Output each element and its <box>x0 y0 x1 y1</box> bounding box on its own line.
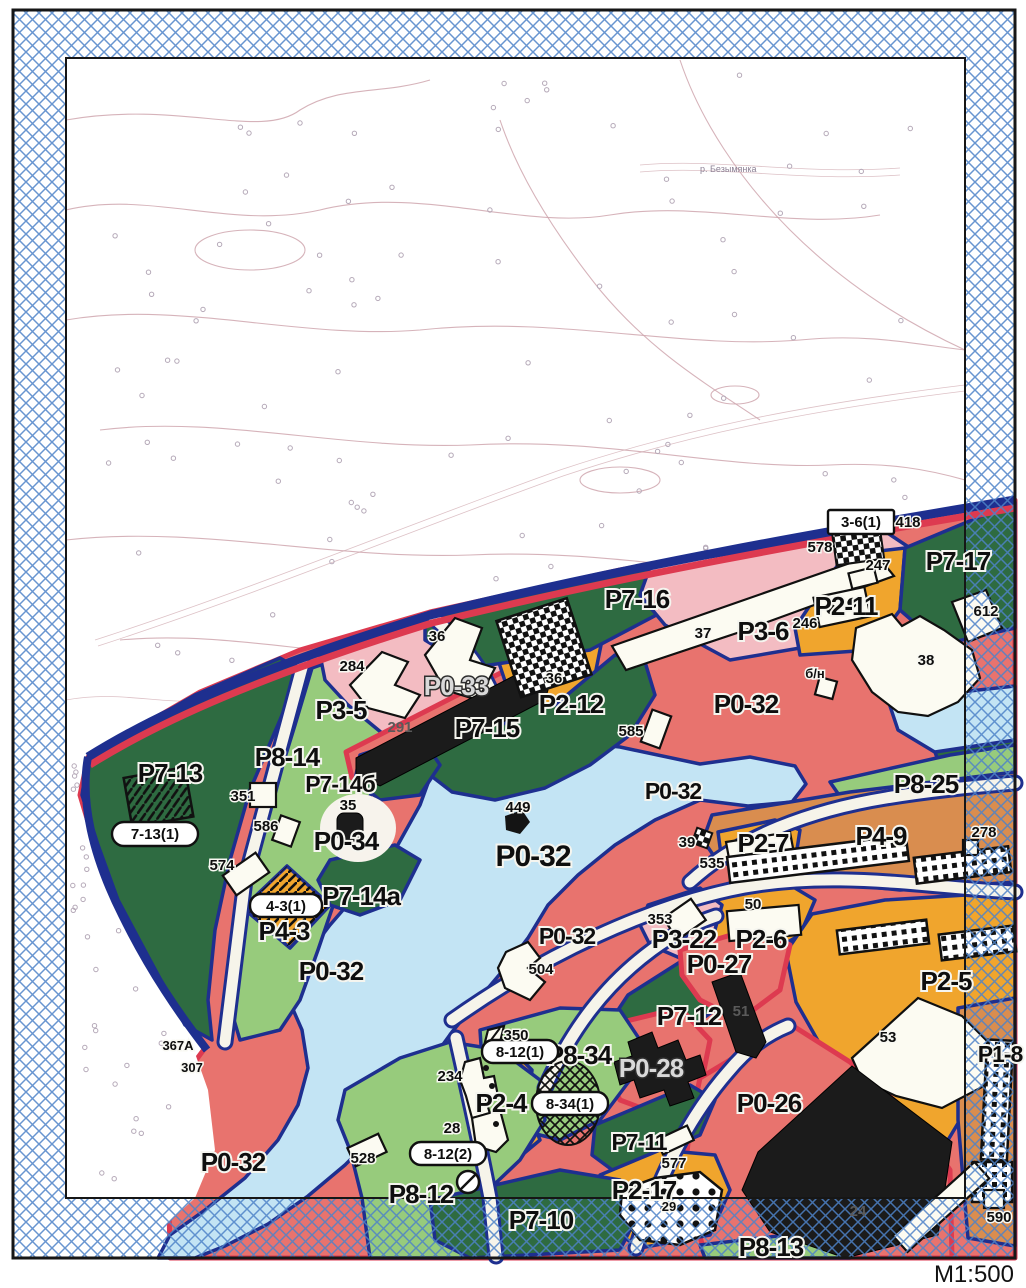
num-574: 574 <box>209 857 235 874</box>
zone-label-p2-7: Р2-7 <box>738 828 789 858</box>
num-247: 247 <box>865 557 890 574</box>
zone-label-p0-26: Р0-26 <box>737 1088 802 1118</box>
badge-8-34-1: 8-34(1) <box>532 1092 608 1115</box>
badge-4-3-1: 4-3(1) <box>250 894 322 917</box>
num-367a: 367А <box>162 1038 194 1053</box>
zone-label-p7-10: Р7-10 <box>509 1205 574 1235</box>
zone-label-p7-17: Р7-17 <box>926 546 991 576</box>
zone-label-p7-14b: Р7-14б <box>305 771 375 797</box>
zone-label-p0-32-c: Р0-32 <box>645 778 702 804</box>
num-351: 351 <box>230 788 255 805</box>
num-585: 585 <box>618 723 643 740</box>
zone-label-p1-8: Р1-8 <box>978 1041 1024 1067</box>
num-350: 350 <box>503 1027 528 1044</box>
zone-label-p0-27: Р0-27 <box>687 949 752 979</box>
zone-label-p2-5: Р2-5 <box>921 966 972 996</box>
zone-label-p8-13: Р8-13 <box>739 1232 804 1262</box>
svg-text:8-34(1): 8-34(1) <box>546 1096 594 1113</box>
zone-label-p3-5: Р3-5 <box>316 695 367 725</box>
svg-text:7-13(1): 7-13(1) <box>131 826 179 843</box>
zone-label-p7-12: Р7-12 <box>657 1001 722 1031</box>
num-590: 590 <box>986 1209 1011 1226</box>
num-449: 449 <box>505 799 530 816</box>
num-586: 586 <box>253 818 278 835</box>
zone-label-p0-32-e: Р0-32 <box>299 956 364 986</box>
zone-label-p0-28: Р0-28 <box>619 1053 684 1083</box>
num-504: 504 <box>528 961 554 978</box>
zone-label-p0-32-f: Р0-32 <box>201 1147 266 1177</box>
num-36b: 36 <box>546 670 563 687</box>
num-307: 307 <box>181 1060 203 1075</box>
badge-8-12-2: 8-12(2) <box>410 1142 486 1165</box>
num-bn: б/н <box>805 666 825 681</box>
zone-label-p4-3: Р4-3 <box>259 916 310 946</box>
river-label: р. Безымянка <box>700 164 757 174</box>
num-535: 535 <box>699 855 724 872</box>
zone-label-p0-32-lake: Р0-32 <box>495 840 570 873</box>
num-53: 53 <box>880 1029 897 1046</box>
zoning-map-page: р. Безымянка <box>0 0 1026 1288</box>
num-353: 353 <box>647 911 672 928</box>
zone-label-p7-11: Р7-11 <box>611 1129 667 1155</box>
num-291: 291 <box>387 719 412 736</box>
num-246: 246 <box>792 615 817 632</box>
num-50: 50 <box>745 896 762 913</box>
num-578: 578 <box>807 539 832 556</box>
num-35: 35 <box>340 797 357 814</box>
num-528: 528 <box>350 1150 375 1167</box>
badge-7-13-1: 7-13(1) <box>112 822 198 846</box>
num-278: 278 <box>971 824 996 841</box>
zoning-map: р. Безымянка <box>0 0 1026 1288</box>
svg-text:8-12(2): 8-12(2) <box>424 1146 472 1163</box>
zone-label-p0-33: Р0-33 <box>424 671 489 701</box>
svg-text:3-6(1): 3-6(1) <box>841 514 881 531</box>
badge-3-6-1: 3-6(1) <box>828 510 894 534</box>
num-577: 577 <box>661 1155 686 1172</box>
zone-label-p8-12: Р8-12 <box>389 1179 454 1209</box>
num-418: 418 <box>895 514 920 531</box>
num-51: 51 <box>733 1003 750 1020</box>
num-234: 234 <box>437 1068 463 1085</box>
zone-label-p3-6: Р3-6 <box>738 616 789 646</box>
zone-label-p0-32-a: Р0-32 <box>714 689 779 719</box>
num-24: 24 <box>850 1203 867 1220</box>
zone-label-p7-15: Р7-15 <box>455 713 520 743</box>
zone-label-p2-11: Р2-11 <box>815 591 878 621</box>
num-36a: 36 <box>429 628 446 645</box>
zone-label-p7-13: Р7-13 <box>138 758 203 788</box>
num-37: 37 <box>695 625 712 642</box>
zone-label-p2-4: Р2-4 <box>476 1088 528 1118</box>
zone-label-p8-14: Р8-14 <box>255 742 321 772</box>
symbol-8-12-2 <box>457 1171 479 1193</box>
zone-label-p7-16: Р7-16 <box>605 584 670 614</box>
num-39: 39 <box>679 834 696 851</box>
num-612: 612 <box>973 603 998 620</box>
num-29: 29 <box>662 1199 676 1214</box>
num-38: 38 <box>918 652 935 669</box>
svg-text:4-3(1): 4-3(1) <box>266 898 306 915</box>
zone-label-p8-25: Р8-25 <box>894 769 959 799</box>
svg-text:8-12(1): 8-12(1) <box>496 1044 544 1061</box>
num-28: 28 <box>444 1120 461 1137</box>
zone-label-p4-9: Р4-9 <box>856 821 907 851</box>
zone-label-p2-12: Р2-12 <box>539 689 604 719</box>
zone-label-p7-14a: Р7-14а <box>322 881 401 911</box>
zone-label-p0-32-d: Р0-32 <box>539 923 596 949</box>
num-284: 284 <box>339 658 365 675</box>
zone-label-p0-34: Р0-34 <box>314 826 380 856</box>
scale-label: М1:500 <box>934 1261 1014 1288</box>
